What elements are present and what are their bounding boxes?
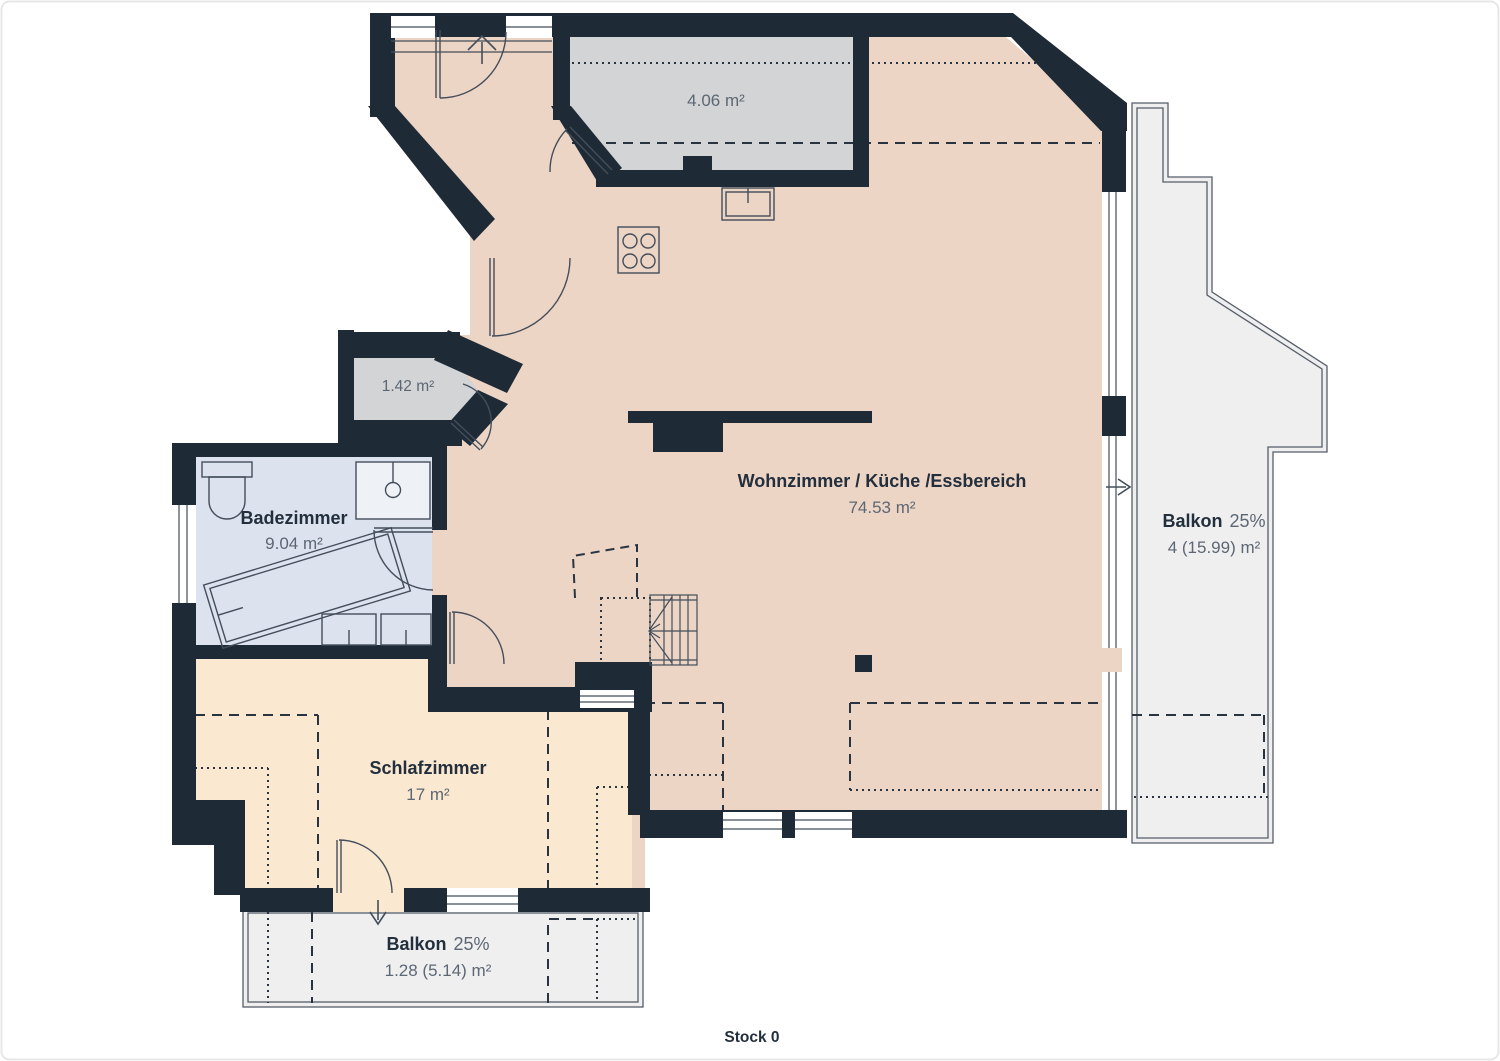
label-storage-top-area: 4.06 m² (687, 91, 745, 110)
wall-segment (172, 800, 245, 845)
label-balcony-bottom-name: Balkon25% (386, 934, 489, 954)
wall-segment (172, 600, 196, 810)
label-bedroom-name: Schlafzimmer (369, 758, 486, 778)
window (172, 505, 196, 603)
label-bathroom-area: 9.04 m² (265, 534, 323, 553)
door-opening-floor (333, 888, 404, 912)
label-balcony-right-area: 4 (15.99) m² (1168, 538, 1261, 557)
wall-segment (853, 13, 869, 187)
floorplan-canvas: 4.06 m² 1.42 m² Wohnzimmer / Küche /Essb… (0, 0, 1500, 1061)
balcony-bottom-outline (243, 908, 643, 1007)
wall-segment (214, 843, 245, 895)
wall-segment (240, 888, 650, 912)
label-bathroom-name: Badezimmer (240, 508, 347, 528)
floorplan-page: 4.06 m² 1.42 m² Wohnzimmer / Küche /Essb… (0, 0, 1500, 1061)
label-living-name: Wohnzimmer / Küche /Essbereich (738, 471, 1027, 491)
window (795, 812, 852, 838)
label-balcony-bottom-area: 1.28 (5.14) m² (385, 961, 492, 980)
window (1102, 192, 1126, 396)
label-balcony-right-name: Balkon25% (1162, 511, 1265, 531)
wall-segment (1102, 396, 1126, 436)
wall-segment (180, 443, 447, 457)
balcony-bottom (243, 908, 643, 1007)
window (723, 812, 782, 838)
wall-segment (338, 332, 460, 358)
sink-fixture (356, 462, 430, 519)
kitchen-counter-wall (653, 423, 723, 452)
label-living-area: 74.53 m² (848, 498, 915, 517)
window (1102, 672, 1126, 810)
label-bedroom-area: 17 m² (406, 785, 450, 804)
wall-segment (428, 687, 580, 712)
label-storage-small-area: 1.42 m² (382, 378, 435, 395)
wall-segment (596, 170, 868, 187)
wall-segment (683, 156, 712, 172)
wall-segment (432, 443, 447, 530)
pillar (855, 655, 872, 672)
wall-segment (1102, 122, 1126, 192)
wall-segment (338, 420, 462, 446)
window (1102, 436, 1126, 648)
floor-label: Stock 0 (724, 1029, 779, 1046)
wall-segment (553, 13, 1013, 37)
wall-segment (172, 443, 196, 508)
pass-through (580, 690, 634, 708)
kitchen-counter-wall (628, 411, 872, 423)
wall-segment (640, 810, 1127, 838)
wall-segment (628, 700, 650, 815)
wall-segment (180, 645, 447, 659)
window (447, 888, 518, 912)
